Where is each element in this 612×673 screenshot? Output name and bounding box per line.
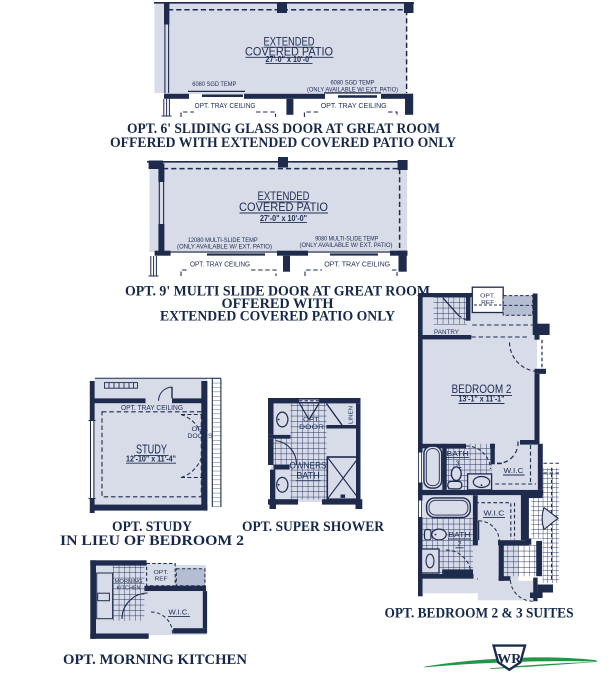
svg-text:KITCHEN: KITCHEN: [117, 585, 141, 591]
svg-text:OPT. MORNING KITCHEN: OPT. MORNING KITCHEN: [63, 651, 247, 668]
svg-text:(ONLY AVAILABLE W/ EXT. PATIO): (ONLY AVAILABLE W/ EXT. PATIO): [307, 86, 398, 93]
svg-text:IN LIEU OF BEDROOM 2: IN LIEU OF BEDROOM 2: [60, 532, 244, 549]
svg-text:PANTRY: PANTRY: [434, 329, 459, 336]
svg-text:13'-1" x 11'-1": 13'-1" x 11'-1": [459, 395, 505, 404]
svg-text:BATH: BATH: [447, 449, 469, 458]
svg-text:OWNERS: OWNERS: [290, 461, 327, 471]
svg-text:MORNING: MORNING: [115, 579, 143, 585]
svg-text:OPT.: OPT.: [480, 293, 495, 299]
svg-text:WR: WR: [497, 651, 521, 666]
svg-text:COVERED PATIO: COVERED PATIO: [239, 202, 328, 214]
svg-text:2: 2: [457, 539, 461, 548]
svg-text:REF: REF: [155, 576, 168, 582]
svg-text:6080 SGD TEMP: 6080 SGD TEMP: [192, 81, 236, 88]
svg-text:OPT. TRAY CEILING: OPT. TRAY CEILING: [190, 260, 250, 269]
svg-text:27'-0" x 10'-0": 27'-0" x 10'-0": [260, 214, 307, 223]
svg-text:OPT. TRAY CEILING: OPT. TRAY CEILING: [195, 101, 256, 110]
svg-text:BATH: BATH: [449, 530, 471, 539]
svg-text:LINEN: LINEN: [348, 406, 354, 424]
svg-text:OPT. BEDROOM 2 & 3 SUITES: OPT. BEDROOM 2 & 3 SUITES: [385, 605, 574, 622]
svg-text:OPT.: OPT.: [154, 570, 169, 576]
svg-text:W.I.C: W.I.C: [504, 466, 525, 475]
svg-text:OPT. SUPER SHOWER: OPT. SUPER SHOWER: [242, 518, 385, 535]
svg-text:OFFERED WITH EXTENDED COVERED: OFFERED WITH EXTENDED COVERED PATIO ONLY: [110, 134, 456, 151]
svg-text:W.I.C.: W.I.C.: [169, 610, 190, 617]
svg-text:REF: REF: [481, 300, 494, 306]
svg-text:3: 3: [455, 459, 459, 468]
svg-text:(ONLY AVAILABLE W/ EXT. PATIO): (ONLY AVAILABLE W/ EXT. PATIO): [300, 242, 393, 249]
svg-text:6080 SGD TEMP: 6080 SGD TEMP: [331, 79, 375, 86]
svg-text:OPT. TRAY CEILING: OPT. TRAY CEILING: [121, 403, 183, 412]
svg-text:OPT.: OPT.: [303, 417, 320, 424]
svg-text:(ONLY AVAILABLE W/ EXT. PATIO): (ONLY AVAILABLE W/ EXT. PATIO): [177, 243, 272, 250]
svg-text:DOORS: DOORS: [188, 433, 213, 440]
svg-text:W.I.C: W.I.C: [484, 508, 506, 517]
svg-text:12'-10" x 11'-4": 12'-10" x 11'-4": [126, 454, 176, 463]
svg-text:OPT. TRAY CEILING: OPT. TRAY CEILING: [324, 260, 390, 269]
svg-text:27'-0" x 10'-0": 27'-0" x 10'-0": [266, 55, 313, 64]
svg-text:EXTENDED COVERED PATIO ONLY: EXTENDED COVERED PATIO ONLY: [160, 308, 395, 325]
svg-text:BATH: BATH: [297, 471, 320, 481]
svg-text:OPT. TRAY CEILING: OPT. TRAY CEILING: [321, 101, 387, 110]
svg-text:DOOR: DOOR: [299, 424, 324, 431]
